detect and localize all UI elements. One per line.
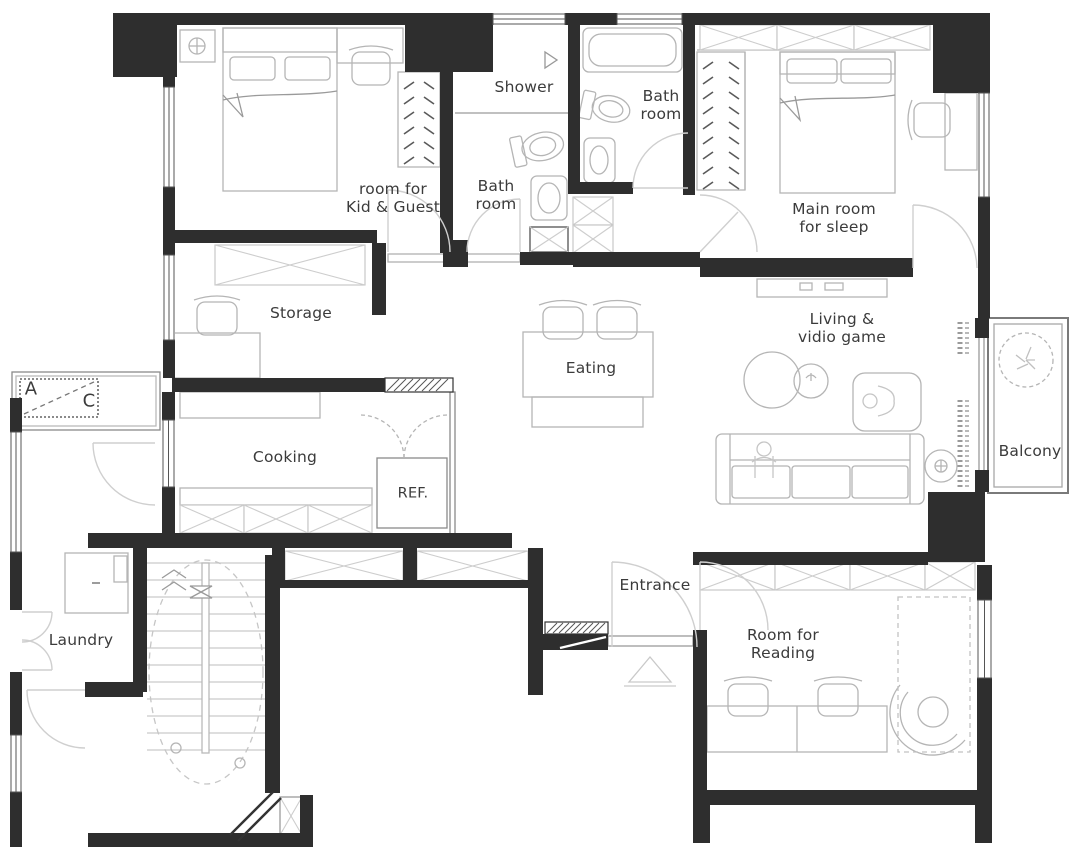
door-bath-main: [633, 133, 688, 188]
door-closet: [700, 195, 757, 252]
room-label-ref: REF.: [398, 486, 429, 503]
floorplan-drawing: [0, 0, 1080, 860]
chair-icon: [352, 52, 390, 85]
room-label-storage: Storage: [270, 305, 332, 323]
toilet-icon: [509, 127, 566, 167]
storage-furniture: [173, 296, 260, 378]
tv-console-icon: [757, 279, 887, 297]
chair-icon: [543, 307, 583, 339]
counter-icon: [180, 488, 372, 505]
chair-icon: [197, 302, 237, 335]
desk-icon: [173, 333, 260, 378]
room-label-eating: Eating: [566, 360, 617, 378]
room-label-laundry: Laundry: [49, 632, 114, 650]
coffee-table-icon: [744, 352, 800, 408]
person-icon: [863, 394, 877, 408]
pillow-icon: [787, 59, 837, 83]
person-icon: [757, 442, 771, 456]
chair-icon: [728, 684, 768, 716]
shower-head-icon: [545, 52, 557, 68]
room-label-ac-c: C: [83, 392, 96, 413]
kid-room-furniture: [180, 28, 440, 191]
room-label-ac-a: A: [25, 380, 38, 401]
doormat-icon: [629, 657, 671, 682]
pillow-icon: [230, 57, 275, 80]
door-left-double: [22, 640, 52, 670]
room-label-shower: Shower: [495, 79, 554, 97]
sink-icon: [584, 138, 615, 183]
room-label-main-sleep: Main roomfor sleep: [792, 201, 876, 237]
chair-icon: [597, 307, 637, 339]
laundry-furniture: [65, 553, 128, 613]
toilet-icon: [579, 90, 633, 128]
room-label-kid-guest: room forKid & Guest: [346, 181, 440, 217]
door-entrance: [612, 562, 697, 647]
daybed-icon: [898, 597, 970, 752]
door-laundry: [27, 690, 85, 748]
pillow-icon: [841, 59, 891, 83]
room-label-balcony: Balcony: [999, 443, 1062, 461]
room-label-living: Living &vidio game: [798, 311, 886, 347]
stairs: [147, 560, 265, 784]
room-label-bath-main: Bathroom: [641, 88, 682, 124]
sofa-icon: [716, 434, 924, 504]
door-service: [93, 443, 155, 505]
chair-icon: [818, 684, 858, 716]
counter-icon: [180, 392, 320, 418]
balcony-parapet: [988, 318, 1068, 493]
room-label-entrance: Entrance: [619, 577, 690, 595]
balcony-elements: [960, 318, 1068, 493]
pillow-icon: [285, 57, 330, 80]
door-left-double: [22, 612, 52, 642]
living-furniture: [716, 352, 957, 504]
room-label-cooking: Cooking: [253, 449, 317, 467]
wardrobe-icon: [398, 72, 440, 167]
closet-icon: [697, 52, 745, 190]
floor-plan: room forKid & Guest Shower Bathroom Bath…: [0, 0, 1080, 860]
room-label-bath-inner: Bathroom: [476, 178, 517, 214]
reading-furniture: [707, 597, 970, 755]
door-main-room: [913, 205, 977, 268]
room-label-reading: Room forReading: [747, 627, 819, 663]
